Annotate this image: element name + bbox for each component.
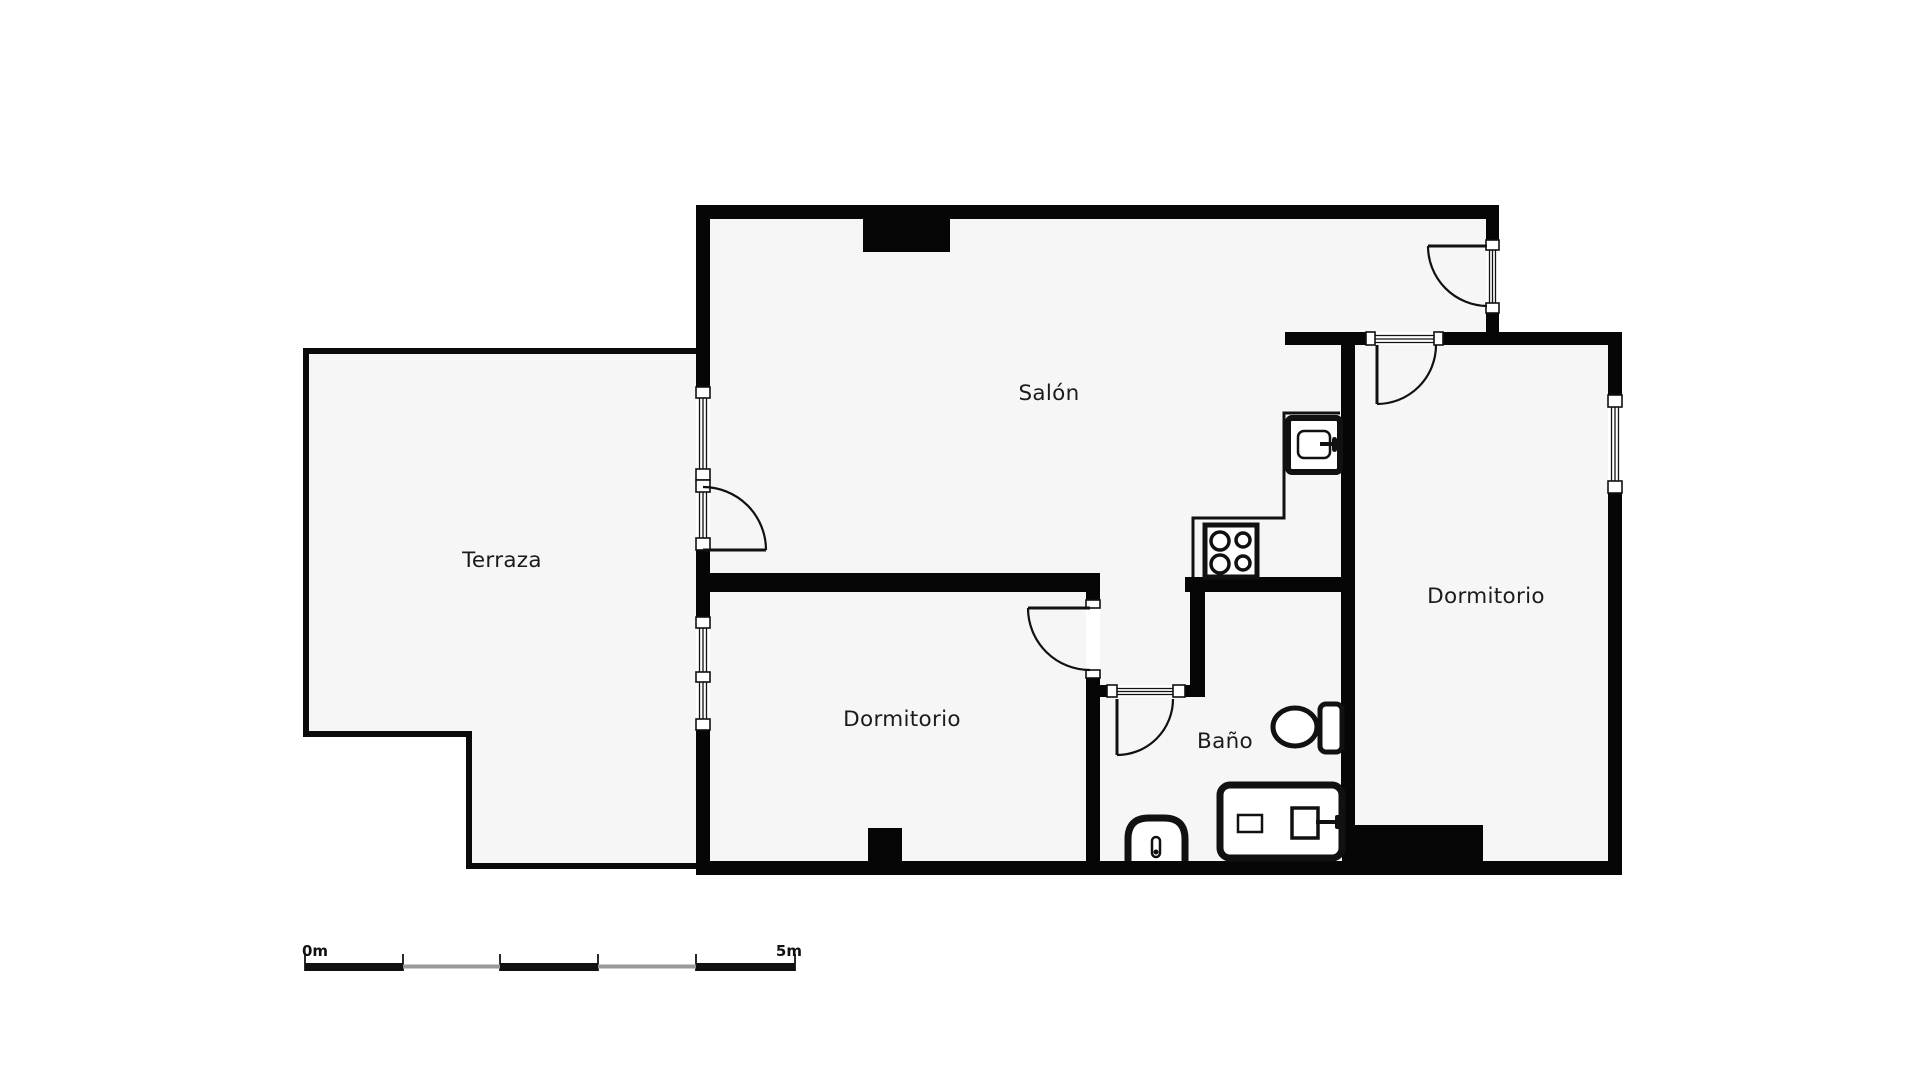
window-frame bbox=[696, 617, 710, 628]
wall bbox=[696, 573, 1100, 592]
window-frame bbox=[696, 672, 710, 682]
vanity-faucet-handle bbox=[1335, 815, 1340, 829]
terraza-wall bbox=[303, 348, 696, 354]
kitchen-sink-icon bbox=[1288, 418, 1340, 472]
scale-segment-gray bbox=[598, 965, 696, 969]
stove-icon bbox=[1205, 525, 1257, 577]
room-label-salon: Salón bbox=[1018, 381, 1079, 406]
room-label-terraza: Terraza bbox=[461, 548, 542, 573]
toilet-tank bbox=[1320, 704, 1342, 752]
terraza-floor bbox=[303, 348, 696, 869]
wall bbox=[696, 205, 1499, 219]
door-frame bbox=[696, 538, 710, 550]
scale-bar: 0m5m bbox=[302, 942, 802, 971]
wall bbox=[1190, 592, 1205, 697]
scale-segment-black bbox=[305, 963, 403, 971]
stove-burner bbox=[1211, 555, 1229, 573]
room-label-dormitorio-izq: Dormitorio bbox=[843, 707, 961, 732]
door-frame bbox=[1486, 240, 1499, 250]
column-bottom bbox=[868, 828, 902, 861]
terraza-wall bbox=[466, 731, 472, 869]
scale-start-label: 0m bbox=[302, 942, 328, 960]
bidet-icon bbox=[1128, 818, 1185, 861]
toilet-icon bbox=[1273, 704, 1342, 752]
room-label-dormitorio-der: Dormitorio bbox=[1427, 584, 1545, 609]
door-frame bbox=[1107, 685, 1117, 697]
window-frame bbox=[696, 719, 710, 730]
stove-burner bbox=[1236, 533, 1250, 547]
sink-faucet-handle bbox=[1332, 437, 1337, 452]
floor-plan: SalónTerrazaDormitorioBañoDormitorio0m5m bbox=[0, 0, 1920, 1080]
scale-segment-gray bbox=[403, 965, 500, 969]
wall bbox=[1285, 332, 1620, 345]
floor-plan-page: SalónTerrazaDormitorioBañoDormitorio0m5m bbox=[0, 0, 1920, 1080]
vanity-sink-icon bbox=[1220, 785, 1342, 858]
column-top bbox=[863, 219, 950, 252]
door-frame bbox=[1434, 332, 1443, 345]
wall-opening bbox=[1086, 600, 1100, 678]
door-frame bbox=[1086, 670, 1100, 678]
terraza-wall bbox=[466, 863, 696, 869]
bidet-drain-dot bbox=[1154, 850, 1159, 855]
terraza-wall bbox=[303, 731, 469, 737]
scale-segment-black bbox=[500, 963, 598, 971]
stove-burner bbox=[1236, 556, 1250, 570]
window-frame bbox=[696, 469, 710, 480]
toilet-bowl bbox=[1273, 708, 1317, 746]
scale-segment-black bbox=[696, 963, 795, 971]
window-frame bbox=[1608, 395, 1622, 407]
door-frame bbox=[1366, 332, 1375, 345]
door-frame bbox=[1173, 685, 1185, 697]
vanity-soap-dish bbox=[1238, 815, 1262, 832]
vanity-basin bbox=[1292, 808, 1318, 838]
terraza-wall bbox=[303, 348, 309, 737]
window-frame bbox=[696, 387, 710, 398]
scale-end-label: 5m bbox=[776, 942, 802, 960]
stove-burner bbox=[1211, 532, 1229, 550]
door-frame bbox=[1486, 303, 1499, 313]
wall bbox=[696, 861, 1622, 875]
window-frame bbox=[1608, 481, 1622, 493]
room-label-bano: Baño bbox=[1197, 729, 1253, 754]
wardrobe-block bbox=[1342, 825, 1483, 875]
